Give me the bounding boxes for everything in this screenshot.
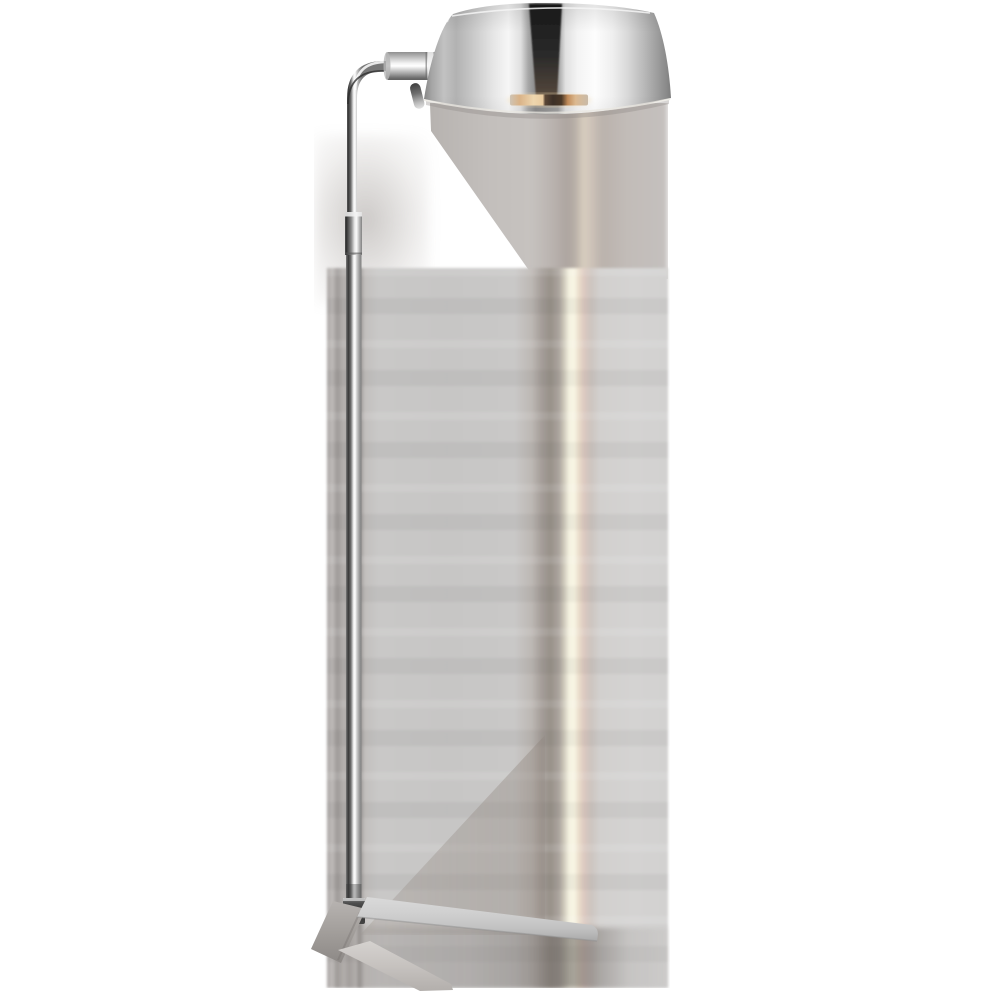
base-front-leg — [338, 941, 453, 991]
floor-lamp-illustration — [0, 0, 1000, 1000]
product-image-canvas — [0, 0, 1000, 1000]
elbow-pipe-and-upper-rod — [352, 66, 410, 214]
stem-collar-cap — [345, 212, 362, 217]
stem-collar — [345, 212, 362, 255]
arm-ring-line — [426, 52, 428, 80]
stem-collar-seam — [345, 253, 362, 255]
base-blade — [357, 897, 598, 941]
stem-base-hub-ring — [343, 898, 365, 901]
adjustment-knob — [409, 82, 425, 110]
lower-stem-tube — [346, 255, 362, 905]
bulb-and-socket — [510, 95, 588, 106]
arm-end-cap — [384, 52, 391, 80]
